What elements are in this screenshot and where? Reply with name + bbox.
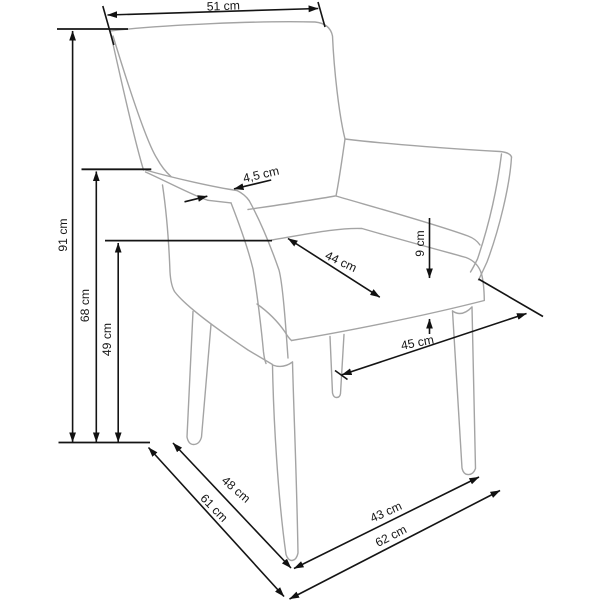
svg-text:51 cm: 51 cm [206, 0, 240, 14]
svg-text:91 cm: 91 cm [56, 218, 70, 251]
svg-text:68 cm: 68 cm [78, 289, 92, 322]
svg-text:48 cm: 48 cm [219, 473, 253, 505]
svg-text:45 cm: 45 cm [400, 333, 435, 353]
svg-text:9 cm: 9 cm [413, 230, 427, 256]
svg-text:49 cm: 49 cm [100, 323, 114, 356]
svg-text:43 cm: 43 cm [368, 499, 404, 526]
svg-text:44 cm: 44 cm [323, 248, 359, 275]
